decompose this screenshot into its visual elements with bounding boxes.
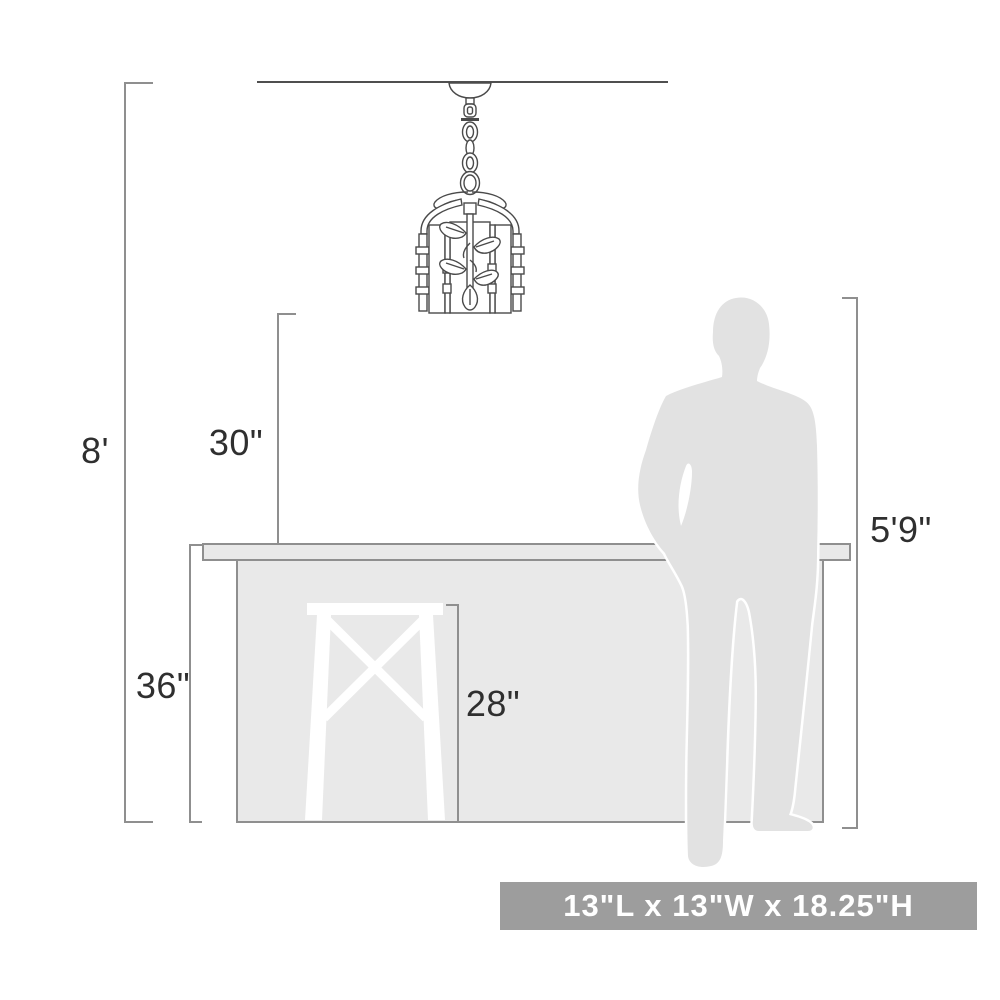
- fixture-clearance-dimension-line: [278, 314, 296, 544]
- vine-stem: [467, 214, 473, 288]
- frame-tab: [416, 267, 429, 274]
- hanging-chain: [461, 104, 479, 173]
- fixture-clearance-label: 30": [200, 425, 272, 461]
- mullion-tab: [443, 284, 451, 293]
- ceiling-canopy: [449, 83, 491, 98]
- stool-seat: [307, 603, 443, 615]
- mullion-tab: [488, 284, 496, 293]
- pendant-light: [416, 83, 524, 313]
- frame-tab: [416, 247, 429, 254]
- counter-height-label: 36": [127, 668, 199, 704]
- size-badge: 13"L x 13"W x 18.25"H: [500, 882, 977, 930]
- frame-tab: [511, 247, 524, 254]
- chain-link-hole: [467, 157, 474, 169]
- scene-graphic: [0, 0, 1000, 1000]
- canopy-stem: [466, 98, 474, 104]
- chain-link-hole: [467, 126, 474, 138]
- frame-tab: [511, 287, 524, 294]
- frame-tab: [511, 267, 524, 274]
- person-height-label: 5'9": [857, 512, 945, 548]
- stool-height-label: 28": [457, 686, 529, 722]
- frame-tab: [416, 287, 429, 294]
- chain-link-hole: [468, 107, 473, 114]
- hanger-ring-hole: [464, 175, 476, 191]
- size-badge-text: 13"L x 13"W x 18.25"H: [563, 888, 914, 924]
- dimension-diagram: 8' 30" 36" 28" 5'9" 13"L x 13"W x 18.25"…: [0, 0, 1000, 1000]
- stem-socket: [464, 203, 476, 214]
- person-height-dimension-line: [842, 298, 857, 828]
- ceiling-height-label: 8': [58, 433, 132, 469]
